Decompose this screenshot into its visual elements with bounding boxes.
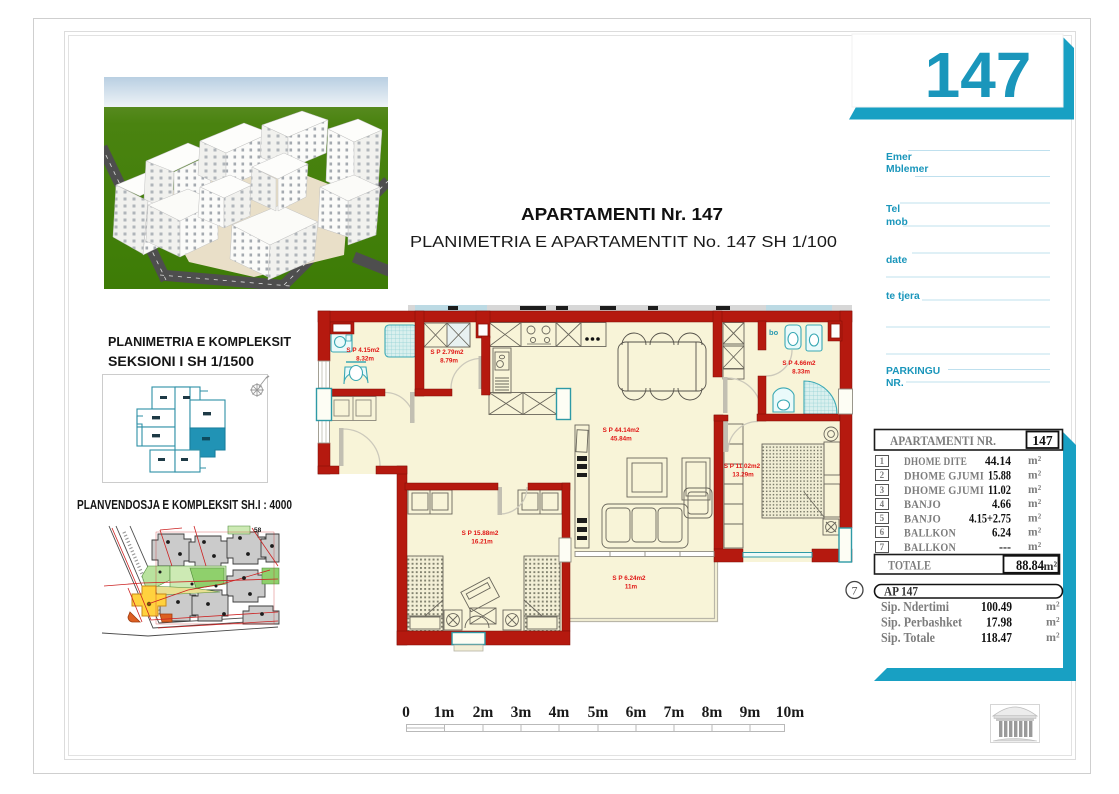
svg-text:8.79m: 8.79m bbox=[440, 358, 458, 365]
svg-text:PARKINGU: PARKINGU bbox=[886, 366, 940, 377]
svg-text:1: 1 bbox=[880, 456, 885, 466]
svg-text:3m: 3m bbox=[511, 704, 532, 721]
svg-text:100.49: 100.49 bbox=[981, 599, 1012, 614]
svg-text:m²: m² bbox=[1044, 559, 1058, 573]
svg-text:11.02: 11.02 bbox=[988, 483, 1011, 497]
svg-text:44.14: 44.14 bbox=[985, 454, 1012, 468]
svg-text:mob: mob bbox=[886, 217, 908, 228]
svg-text:m²: m² bbox=[1028, 455, 1042, 467]
svg-text:m²: m² bbox=[1028, 513, 1042, 525]
svg-text:0: 0 bbox=[402, 704, 410, 721]
svg-text:te tjera: te tjera bbox=[886, 291, 920, 302]
svg-text:SEKSIONI I SH 1/1500: SEKSIONI I SH 1/1500 bbox=[108, 354, 254, 369]
svg-text:BALLKON: BALLKON bbox=[904, 542, 957, 554]
svg-text:BANJO: BANJO bbox=[904, 499, 941, 511]
svg-text:DHOME GJUMI: DHOME GJUMI bbox=[904, 471, 984, 483]
svg-text:7: 7 bbox=[880, 542, 885, 552]
svg-text:6: 6 bbox=[880, 527, 885, 537]
svg-text:PLANIMETRIA E KOMPLEKSIT: PLANIMETRIA E KOMPLEKSIT bbox=[108, 334, 291, 349]
svg-text:m²: m² bbox=[1046, 599, 1060, 613]
svg-text:88.84: 88.84 bbox=[1016, 558, 1044, 574]
svg-text:5m: 5m bbox=[588, 704, 609, 721]
svg-text:118.47: 118.47 bbox=[981, 630, 1012, 645]
svg-text:147: 147 bbox=[925, 39, 1032, 111]
svg-text:13.29m: 13.29m bbox=[732, 472, 754, 479]
svg-text:AP 147: AP 147 bbox=[884, 585, 918, 599]
svg-text:10m: 10m bbox=[776, 704, 805, 721]
svg-text:bo: bo bbox=[769, 328, 779, 337]
svg-text:9m: 9m bbox=[740, 704, 761, 721]
svg-text:17.98: 17.98 bbox=[986, 615, 1012, 630]
svg-text:m²: m² bbox=[1028, 541, 1042, 553]
svg-text:Sip. Totale: Sip. Totale bbox=[881, 630, 935, 645]
svg-text:S P 2.79m2: S P 2.79m2 bbox=[430, 349, 464, 356]
svg-text:m²: m² bbox=[1028, 470, 1042, 482]
svg-text:15.88: 15.88 bbox=[988, 469, 1011, 483]
svg-text:11m: 11m bbox=[625, 584, 638, 591]
svg-text:m²: m² bbox=[1028, 527, 1042, 539]
svg-text:PLANVENDOSJA E KOMPLEKSIT SH.I: PLANVENDOSJA E KOMPLEKSIT SH.I : 4000 bbox=[77, 497, 292, 512]
svg-text:APARTAMENTI NR.: APARTAMENTI NR. bbox=[890, 434, 996, 448]
svg-text:m²: m² bbox=[1028, 498, 1042, 510]
svg-text:45.84m: 45.84m bbox=[610, 436, 632, 443]
svg-text:8.33m: 8.33m bbox=[792, 369, 810, 376]
svg-text:DHOME GJUMI: DHOME GJUMI bbox=[904, 485, 984, 497]
svg-text:m²: m² bbox=[1046, 615, 1060, 629]
svg-text:date: date bbox=[886, 255, 907, 266]
svg-text:m²: m² bbox=[1028, 484, 1042, 496]
svg-text:4: 4 bbox=[880, 499, 885, 509]
svg-text:Tel: Tel bbox=[886, 204, 900, 215]
svg-text:4.15+2.75: 4.15+2.75 bbox=[969, 512, 1011, 526]
svg-text:---: --- bbox=[999, 540, 1011, 554]
svg-text:147: 147 bbox=[1032, 433, 1053, 448]
svg-text:S P 4.66m2: S P 4.66m2 bbox=[782, 360, 816, 367]
svg-text:NR.: NR. bbox=[886, 378, 904, 389]
svg-text:Emer: Emer bbox=[886, 152, 912, 163]
svg-text:58: 58 bbox=[254, 527, 262, 534]
svg-text:6m: 6m bbox=[626, 704, 647, 721]
svg-text:DHOME DITE: DHOME DITE bbox=[904, 456, 967, 468]
svg-text:BANJO: BANJO bbox=[904, 514, 941, 526]
svg-text:3: 3 bbox=[880, 485, 885, 495]
svg-text:8.32m: 8.32m bbox=[356, 356, 374, 363]
svg-text:7m: 7m bbox=[664, 704, 685, 721]
svg-text:Mblemer: Mblemer bbox=[886, 164, 928, 175]
svg-text:7: 7 bbox=[852, 584, 858, 598]
svg-text:S P 15.88m2: S P 15.88m2 bbox=[462, 530, 499, 537]
svg-text:S P 44.14m2: S P 44.14m2 bbox=[603, 427, 640, 434]
svg-text:2: 2 bbox=[880, 470, 885, 480]
svg-text:2m: 2m bbox=[473, 704, 494, 721]
svg-text:TOTALE: TOTALE bbox=[888, 559, 931, 573]
svg-text:APARTAMENTI Nr. 147: APARTAMENTI Nr. 147 bbox=[521, 204, 723, 224]
svg-text:PLANIMETRIA E APARTAMENTIT No.: PLANIMETRIA E APARTAMENTIT No. 147 SH 1/… bbox=[410, 234, 837, 251]
svg-text:5: 5 bbox=[880, 513, 885, 523]
svg-text:4m: 4m bbox=[549, 704, 570, 721]
svg-text:S P 4.15m2: S P 4.15m2 bbox=[346, 347, 380, 354]
svg-text:Sip. Perbashket: Sip. Perbashket bbox=[881, 615, 962, 630]
svg-text:Sip. Ndertimi: Sip. Ndertimi bbox=[881, 599, 949, 614]
svg-text:6.24: 6.24 bbox=[992, 526, 1012, 540]
svg-text:4.66: 4.66 bbox=[992, 497, 1012, 511]
svg-text:m²: m² bbox=[1046, 630, 1060, 644]
svg-text:16.21m: 16.21m bbox=[471, 539, 493, 546]
svg-text:1m: 1m bbox=[434, 704, 455, 721]
svg-text:BALLKON: BALLKON bbox=[904, 528, 957, 540]
svg-text:8m: 8m bbox=[702, 704, 723, 721]
svg-text:S P 11.02m2: S P 11.02m2 bbox=[724, 463, 761, 470]
svg-text:S P 6.24m2: S P 6.24m2 bbox=[612, 575, 646, 582]
